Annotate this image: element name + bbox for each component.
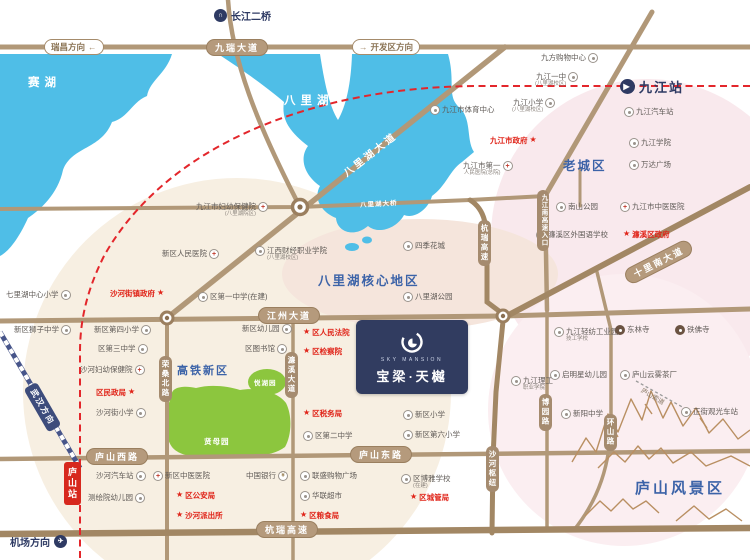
poi-text: 区人民法院 (312, 328, 350, 337)
map-poi: 四季花城 (403, 241, 445, 251)
place-icon (141, 325, 151, 335)
airport-direction-label: 机场方向 ✈ (10, 534, 67, 549)
place-icon (681, 407, 691, 417)
plane-icon: ✈ (54, 535, 67, 548)
gov-star-icon: ★ (176, 511, 183, 519)
gov-star-icon: ★ (303, 328, 310, 336)
map-label-text: 江州大道 (267, 311, 311, 321)
map-poi: ★濂溪区政府 (623, 230, 670, 239)
bridge-text: 长江二桥 (231, 8, 271, 23)
poi-text: 华联超市 (312, 491, 342, 500)
map-label: 九江南高速入口 (537, 190, 549, 251)
direction-arrow-icon: ← (88, 42, 97, 52)
hospital-icon (503, 161, 513, 171)
map-poi: 东林寺 (615, 325, 650, 335)
place-icon (511, 376, 521, 386)
place-icon (198, 292, 208, 302)
map-poi: 沙河妇幼保健院 (80, 365, 145, 375)
poi-label: 区民政局 (96, 388, 126, 397)
poi-subtext: (八里湖院区) (225, 211, 256, 218)
map-poi: 九江轻纺工业园技工学校 (554, 327, 619, 343)
poi-text: 四季花城 (415, 241, 445, 250)
poi-label: 沙河街镇政府 (110, 289, 155, 298)
place-icon (303, 431, 313, 441)
poi-label: 九江市政府 (490, 136, 528, 145)
map-label: 环山路 (604, 414, 617, 451)
map-poi: ★区税务局 (303, 409, 342, 418)
map-poi: ★区城管局 (410, 493, 449, 502)
poi-subtext: 人民医院(总院) (464, 170, 501, 177)
poi-label: 九江市体育中心 (442, 105, 495, 114)
poi-label: 区税务局 (312, 409, 342, 418)
place-icon (403, 241, 413, 251)
place-icon (629, 138, 639, 148)
poi-text: 新区第六小学 (415, 430, 460, 439)
map-poi: 区第一中学(在建) (198, 292, 268, 302)
poi-label: 新区第六小学 (415, 430, 460, 439)
map-poi: 江西财经职业学院(八里湖校区) (255, 246, 327, 262)
poi-label: 沙河派出所 (185, 511, 223, 520)
place-icon (135, 493, 145, 503)
map-label-text: 环山路 (606, 418, 615, 447)
direction-arrow-icon: → (359, 42, 368, 52)
poi-text: 九江市妇幼保健院 (196, 202, 256, 211)
gov-star-icon: ★ (303, 409, 310, 417)
poi-label: 新区幼儿园 (242, 324, 280, 333)
place-icon (629, 160, 639, 170)
map-label-text: 庐山东路 (359, 450, 403, 460)
map-label-text: 赛湖 (28, 77, 61, 89)
map-label-text: 沙河枢纽 (488, 450, 497, 488)
place-icon (403, 292, 413, 302)
poi-subtext: (八里湖校区) (512, 107, 543, 114)
map-poi: ★区粮食局 (300, 511, 339, 520)
place-icon (561, 409, 571, 419)
map-label-text: 八里湖 (284, 95, 334, 107)
map-poi: 区第三中学 (98, 344, 148, 354)
brand-name-zh: 宝梁·天樾 (376, 366, 447, 385)
poi-text: 九江小学 (513, 98, 543, 107)
map-poi: 新区幼儿园 (242, 324, 292, 334)
poi-text: 联盛购物广场 (312, 471, 357, 480)
poi-text: 濂溪区外国语学校 (548, 230, 608, 239)
place-icon (403, 430, 413, 440)
poi-text: 沙河派出所 (185, 511, 223, 520)
map-label: 九瑞大道 (206, 39, 268, 56)
map-poi: 九江市体育中心 (430, 105, 495, 115)
poi-label: 正街观光车站 (693, 407, 738, 416)
map-label-text: 庐山风景区 (635, 480, 725, 497)
poi-label: 沙河妇幼保健院 (80, 365, 133, 374)
poi-text: 新区幼儿园 (242, 324, 280, 333)
poi-label: 江西财经职业学院(八里湖校区) (267, 246, 327, 262)
poi-text: 沙河汽车站 (96, 471, 134, 480)
map-poi: 九江市第一人民医院(总院) (463, 161, 513, 177)
poi-label: 区图书馆 (245, 344, 275, 353)
map-poi: ★区检察院 (303, 347, 342, 356)
map-poi: 沙河汽车站 (96, 471, 146, 481)
map-label: 庐山风景区 (635, 477, 725, 498)
poi-text: 沙河妇幼保健院 (80, 365, 133, 374)
map-label: 濂溪大道 (285, 352, 298, 398)
poi-label: 南山公园 (568, 202, 598, 211)
poi-subtext: 职业学院 (523, 385, 545, 392)
poi-label: 新区人民医院 (162, 249, 207, 258)
map-poi: 庐山云雾茶厂 (620, 370, 677, 380)
place-icon (403, 410, 413, 420)
airport-text: 机场方向 (10, 534, 50, 549)
poi-text: 新区狮子中学 (14, 325, 59, 334)
map-label: 荣桑北路 (159, 356, 172, 402)
map-poi: 九江学院 (629, 138, 671, 148)
poi-label: 九方购物中心 (541, 53, 586, 62)
map-poi: 万达广场 (629, 160, 671, 170)
map-poi: 正街观光车站 (681, 407, 738, 417)
poi-text: 万达广场 (641, 160, 671, 169)
poi-text: 区粮食局 (309, 511, 339, 520)
poi-text: 九江一中 (536, 72, 566, 81)
map-label-text: 高铁新区 (177, 365, 229, 377)
poi-label: 区博雅学校(在建) (413, 474, 451, 490)
poi-label: 区第二中学 (315, 431, 353, 440)
poi-label: 启明星幼儿园 (562, 370, 607, 379)
poi-text: 区第一中学(在建) (210, 292, 268, 301)
poi-text: 正街观光车站 (693, 407, 738, 416)
map-poi: 区民政局★ (96, 388, 135, 397)
hospital-icon (258, 202, 268, 212)
map-label: 杭瑞高速 (478, 220, 491, 266)
map-poi: ★区人民法院 (303, 328, 350, 337)
poi-label: 九江小学(八里湖校区) (512, 98, 543, 114)
poi-label: 联盛购物广场 (312, 471, 357, 480)
map-poi: 九江市妇幼保健院(八里湖院区) (196, 202, 268, 218)
poi-text: 九江学院 (641, 138, 671, 147)
place-icon (588, 53, 598, 63)
location-map: ∩ 长江二桥 ▶ 九江站 庐山站 机场方向 ✈ SKY MANSION 宝梁·天… (0, 0, 750, 560)
map-label-text: 荣桑北路 (161, 360, 170, 398)
poi-label: 七里湖中心小学 (6, 290, 59, 299)
map-poi: 新阳中学 (561, 409, 603, 419)
poi-label: 九江汽车站 (636, 107, 674, 116)
map-label: →开发区方向 (352, 39, 420, 55)
poi-text: 新阳中学 (573, 409, 603, 418)
map-label: 瑞昌方向← (44, 39, 104, 55)
map-label-text: 杭瑞高速 (480, 224, 489, 262)
map-poi: 九江市政府★ (490, 136, 537, 145)
bridge-icon: ∩ (214, 9, 227, 22)
map-label-text: 庐山西路 (95, 452, 139, 462)
map-poi: 新区人民医院 (162, 249, 219, 259)
place-icon (136, 408, 146, 418)
place-icon (138, 344, 148, 354)
poi-label: 新区小学 (415, 410, 445, 419)
poi-label: 新区狮子中学 (14, 325, 59, 334)
brand-logo-icon (399, 329, 425, 355)
poi-label: 区城管局 (419, 493, 449, 502)
map-label: 八里湖核心地区 (318, 270, 420, 289)
map-label: 悦湖园 (254, 377, 277, 387)
hospital-icon (153, 471, 163, 481)
temple-icon (675, 325, 685, 335)
poi-text: 九方购物中心 (541, 53, 586, 62)
poi-text: 新区第四小学 (94, 325, 139, 334)
map-poi: 区图书馆 (245, 344, 287, 354)
map-label: 老城区 (563, 155, 607, 174)
poi-label: 九江学院 (641, 138, 671, 147)
poi-text: 区税务局 (312, 409, 342, 418)
map-poi: 区博雅学校(在建) (401, 474, 451, 490)
poi-label: 濂溪区外国语学校 (548, 230, 608, 239)
poi-subtext: 技工学校 (566, 336, 588, 343)
map-poi: 铁佛寺 (675, 325, 710, 335)
map-poi: 测绘院幼儿园 (88, 493, 145, 503)
poi-text: 濂溪区政府 (632, 230, 670, 239)
map-label: 赛湖 (28, 74, 61, 90)
poi-text: 九江市中医医院 (632, 202, 685, 211)
place-icon (282, 324, 292, 334)
poi-text: 铁佛寺 (687, 325, 710, 334)
map-poi: 九方购物中心 (541, 53, 598, 63)
map-poi: 新区中医医院 (153, 471, 210, 481)
map-label-text: 开发区方向 (371, 41, 414, 53)
poi-label: 万达广场 (641, 160, 671, 169)
poi-label: 九江理工职业学院 (523, 376, 553, 392)
poi-label: 铁佛寺 (687, 325, 710, 334)
poi-label: 八里湖公园 (415, 292, 453, 301)
place-icon (554, 327, 564, 337)
poi-subtext: (八里湖校区) (267, 255, 298, 262)
poi-text: 区第二中学 (315, 431, 353, 440)
map-label: 庐山西路 (86, 448, 148, 465)
poi-text: 区图书馆 (245, 344, 275, 353)
map-poi: 八里湖公园 (403, 292, 453, 302)
place-icon (401, 474, 411, 484)
poi-text: 九江市体育中心 (442, 105, 495, 114)
poi-text: 新区人民医院 (162, 249, 207, 258)
poi-label: 九江市妇幼保健院(八里湖院区) (196, 202, 256, 218)
place-icon (550, 370, 560, 380)
map-poi: 新区小学 (403, 410, 445, 420)
brand-name-en: SKY MANSION (381, 357, 443, 363)
poi-text: 九江市第一 (463, 161, 501, 170)
poi-text: 区第三中学 (98, 344, 136, 353)
poi-text: 九江理工 (523, 376, 553, 385)
lushan-station-tag: 庐山站 (64, 462, 81, 505)
poi-text: 八里湖公园 (415, 292, 453, 301)
poi-label: 区粮食局 (309, 511, 339, 520)
map-label-text: 九江南高速入口 (540, 194, 547, 247)
map-label-text: 博园路 (541, 398, 550, 427)
map-poi: 区第二中学 (303, 431, 353, 441)
gov-star-icon: ★ (176, 491, 183, 499)
poi-text: 区民政局 (96, 388, 126, 397)
map-label: 博园路 (539, 394, 552, 431)
map-label: 贤母园 (204, 436, 230, 447)
map-label-text: 杭瑞高速 (265, 525, 309, 535)
poi-text: 测绘院幼儿园 (88, 493, 133, 502)
place-icon (624, 107, 634, 117)
gov-star-icon: ★ (410, 493, 417, 501)
hospital-icon (135, 365, 145, 375)
poi-text: 新区小学 (415, 410, 445, 419)
map-poi: 联盛购物广场 (300, 471, 357, 481)
poi-label: 九江一中(八里湖校区) (535, 72, 566, 88)
map-label-text: 濂溪大道 (287, 356, 296, 394)
map-label: 庐山东路 (350, 446, 412, 463)
map-label: 八里湖大桥 (360, 197, 398, 209)
map-poi: 新区第六小学 (403, 430, 460, 440)
poi-label: 东林寺 (627, 325, 650, 334)
poi-label: 区检察院 (312, 347, 342, 356)
gov-star-icon: ★ (303, 347, 310, 355)
map-poi: ★区公安局 (176, 491, 215, 500)
gov-star-icon: ★ (623, 230, 630, 238)
poi-label: 区公安局 (185, 491, 215, 500)
poi-text: 七里湖中心小学 (6, 290, 59, 299)
place-icon (61, 325, 71, 335)
poi-label: 庐山云雾茶厂 (632, 370, 677, 379)
poi-label: 九江轻纺工业园技工学校 (566, 327, 619, 343)
place-icon (568, 72, 578, 82)
poi-text: 九江轻纺工业园 (566, 327, 619, 336)
poi-subtext: (八里湖校区) (535, 81, 566, 88)
station-text: 九江站 (639, 77, 684, 96)
map-poi: 沙河街小学 (96, 408, 146, 418)
map-poi: 沙河街镇政府★ (110, 289, 164, 298)
map-label-text: 老城区 (563, 159, 607, 173)
map-label-text: 悦湖园 (254, 380, 277, 387)
poi-label: 新区第四小学 (94, 325, 139, 334)
train-icon: ▶ (620, 79, 635, 94)
jiujiang-station-label: ▶ 九江站 (620, 77, 684, 96)
gov-star-icon: ★ (530, 136, 537, 144)
place-icon (556, 202, 566, 212)
place-icon (430, 105, 440, 115)
changjiang-bridge-label: ∩ 长江二桥 (214, 8, 271, 23)
hospital-icon (620, 202, 630, 212)
place-icon (545, 98, 555, 108)
project-logo-card: SKY MANSION 宝梁·天樾 (356, 320, 468, 394)
map-poi: 九江汽车站 (624, 107, 674, 117)
gov-star-icon: ★ (300, 511, 307, 519)
poi-label: 区第三中学 (98, 344, 136, 353)
poi-text: 南山公园 (568, 202, 598, 211)
poi-subtext: (在建) (413, 483, 428, 490)
place-icon (136, 471, 146, 481)
place-icon (300, 491, 310, 501)
place-icon (277, 344, 287, 354)
poi-label: 新阳中学 (573, 409, 603, 418)
poi-label: 新区中医医院 (165, 471, 210, 480)
map-poi: 九江一中(八里湖校区) (535, 72, 578, 88)
poi-text: 沙河街小学 (96, 408, 134, 417)
poi-text: 九江市政府 (490, 136, 528, 145)
poi-label: 九江市第一人民医院(总院) (463, 161, 501, 177)
map-poi: 中国银行 (246, 471, 288, 481)
map-poi: 南山公园 (556, 202, 598, 212)
poi-label: 沙河汽车站 (96, 471, 134, 480)
poi-text: 新区中医医院 (165, 471, 210, 480)
map-poi: 七里湖中心小学 (6, 290, 71, 300)
poi-text: 江西财经职业学院 (267, 246, 327, 255)
poi-label: 区人民法院 (312, 328, 350, 337)
map-label: 沙河枢纽 (486, 446, 499, 492)
map-poi: 华联超市 (300, 491, 342, 501)
place-icon (255, 246, 265, 256)
place-icon (620, 370, 630, 380)
temple-icon (615, 325, 625, 335)
poi-label: 四季花城 (415, 241, 445, 250)
poi-text: 区公安局 (185, 491, 215, 500)
place-icon (300, 471, 310, 481)
poi-label: 九江市中医医院 (632, 202, 685, 211)
poi-text: 启明星幼儿园 (562, 370, 607, 379)
bank-icon (278, 471, 288, 481)
map-poi: 九江小学(八里湖校区) (512, 98, 555, 114)
map-label-text: 贤母园 (204, 437, 230, 446)
map-label-text: 九瑞大道 (215, 43, 259, 53)
poi-text: 庐山云雾茶厂 (632, 370, 677, 379)
map-label: 高铁新区 (177, 362, 229, 378)
place-icon (61, 290, 71, 300)
poi-text: 九江汽车站 (636, 107, 674, 116)
map-poi: 九江市中医医院 (620, 202, 685, 212)
map-label: 杭瑞高速 (256, 521, 318, 538)
poi-text: 区博雅学校 (413, 474, 451, 483)
map-label: 江州大道 (258, 307, 320, 324)
map-label-text: 八里湖核心地区 (318, 274, 420, 288)
map-label-text: 瑞昌方向 (51, 41, 85, 53)
poi-label: 华联超市 (312, 491, 342, 500)
gov-star-icon: ★ (157, 289, 164, 297)
map-poi: 新区第四小学 (94, 325, 151, 335)
poi-label: 中国银行 (246, 471, 276, 480)
poi-text: 区检察院 (312, 347, 342, 356)
gov-star-icon: ★ (128, 388, 135, 396)
poi-label: 测绘院幼儿园 (88, 493, 133, 502)
map-poi: 启明星幼儿园 (550, 370, 607, 380)
poi-text: 中国银行 (246, 471, 276, 480)
poi-label: 沙河街小学 (96, 408, 134, 417)
poi-label: 区第一中学(在建) (210, 292, 268, 301)
map-poi: 新区狮子中学 (14, 325, 71, 335)
map-poi: 九江理工职业学院 (511, 376, 553, 392)
poi-label: 濂溪区政府 (632, 230, 670, 239)
map-label: 八里湖 (284, 92, 334, 108)
map-poi: ★沙河派出所 (176, 511, 223, 520)
poi-text: 区城管局 (419, 493, 449, 502)
hospital-icon (209, 249, 219, 259)
poi-text: 沙河街镇政府 (110, 289, 155, 298)
poi-text: 东林寺 (627, 325, 650, 334)
